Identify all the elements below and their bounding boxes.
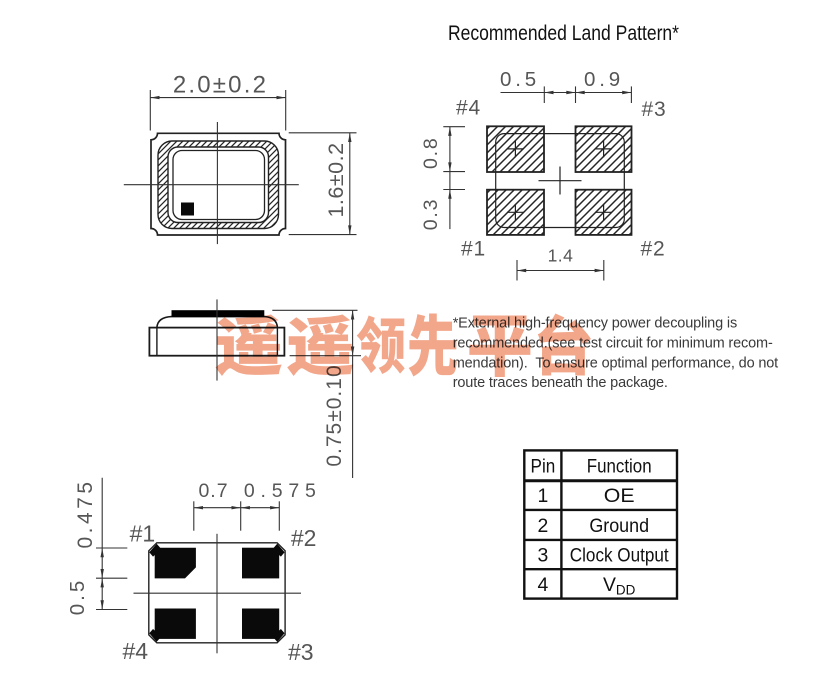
svg-text:VDD: VDD bbox=[603, 574, 636, 598]
svg-text:2: 2 bbox=[538, 515, 549, 537]
svg-text:#2: #2 bbox=[291, 525, 317, 551]
svg-text:0.5: 0.5 bbox=[500, 68, 540, 91]
svg-text:#3: #3 bbox=[642, 98, 667, 121]
svg-text:#3: #3 bbox=[288, 639, 314, 665]
svg-text:2.0±0.2: 2.0±0.2 bbox=[173, 72, 268, 99]
svg-text:3: 3 bbox=[538, 545, 549, 567]
svg-text:route traces beneath the packa: route traces beneath the package. bbox=[453, 375, 668, 391]
svg-text:1: 1 bbox=[538, 485, 549, 507]
svg-text:0.3: 0.3 bbox=[420, 198, 442, 231]
svg-text:#4: #4 bbox=[123, 638, 149, 664]
svg-text:0.75±0.10: 0.75±0.10 bbox=[323, 364, 346, 466]
svg-text:0.475: 0.475 bbox=[74, 478, 97, 548]
svg-text:#1: #1 bbox=[461, 238, 486, 261]
svg-text:#1: #1 bbox=[130, 521, 156, 547]
svg-text:0.5: 0.5 bbox=[66, 578, 89, 616]
svg-text:0.9: 0.9 bbox=[584, 68, 624, 91]
svg-text:4: 4 bbox=[538, 574, 549, 596]
svg-text:0.8: 0.8 bbox=[420, 136, 442, 169]
svg-text:Pin: Pin bbox=[531, 455, 556, 477]
svg-text:Recommended Land Pattern*: Recommended Land Pattern* bbox=[448, 22, 679, 45]
svg-text:Ground: Ground bbox=[589, 515, 649, 537]
svg-text:OE: OE bbox=[604, 485, 635, 507]
svg-text:1.6±0.2: 1.6±0.2 bbox=[324, 142, 348, 217]
svg-text:0.575: 0.575 bbox=[244, 480, 322, 502]
svg-text:Function: Function bbox=[587, 455, 652, 477]
svg-text:Clock Output: Clock Output bbox=[570, 545, 669, 567]
svg-text:1.4: 1.4 bbox=[548, 246, 574, 266]
svg-text:0.7: 0.7 bbox=[198, 480, 228, 502]
svg-text:#4: #4 bbox=[456, 97, 481, 120]
svg-text:#2: #2 bbox=[641, 238, 666, 261]
